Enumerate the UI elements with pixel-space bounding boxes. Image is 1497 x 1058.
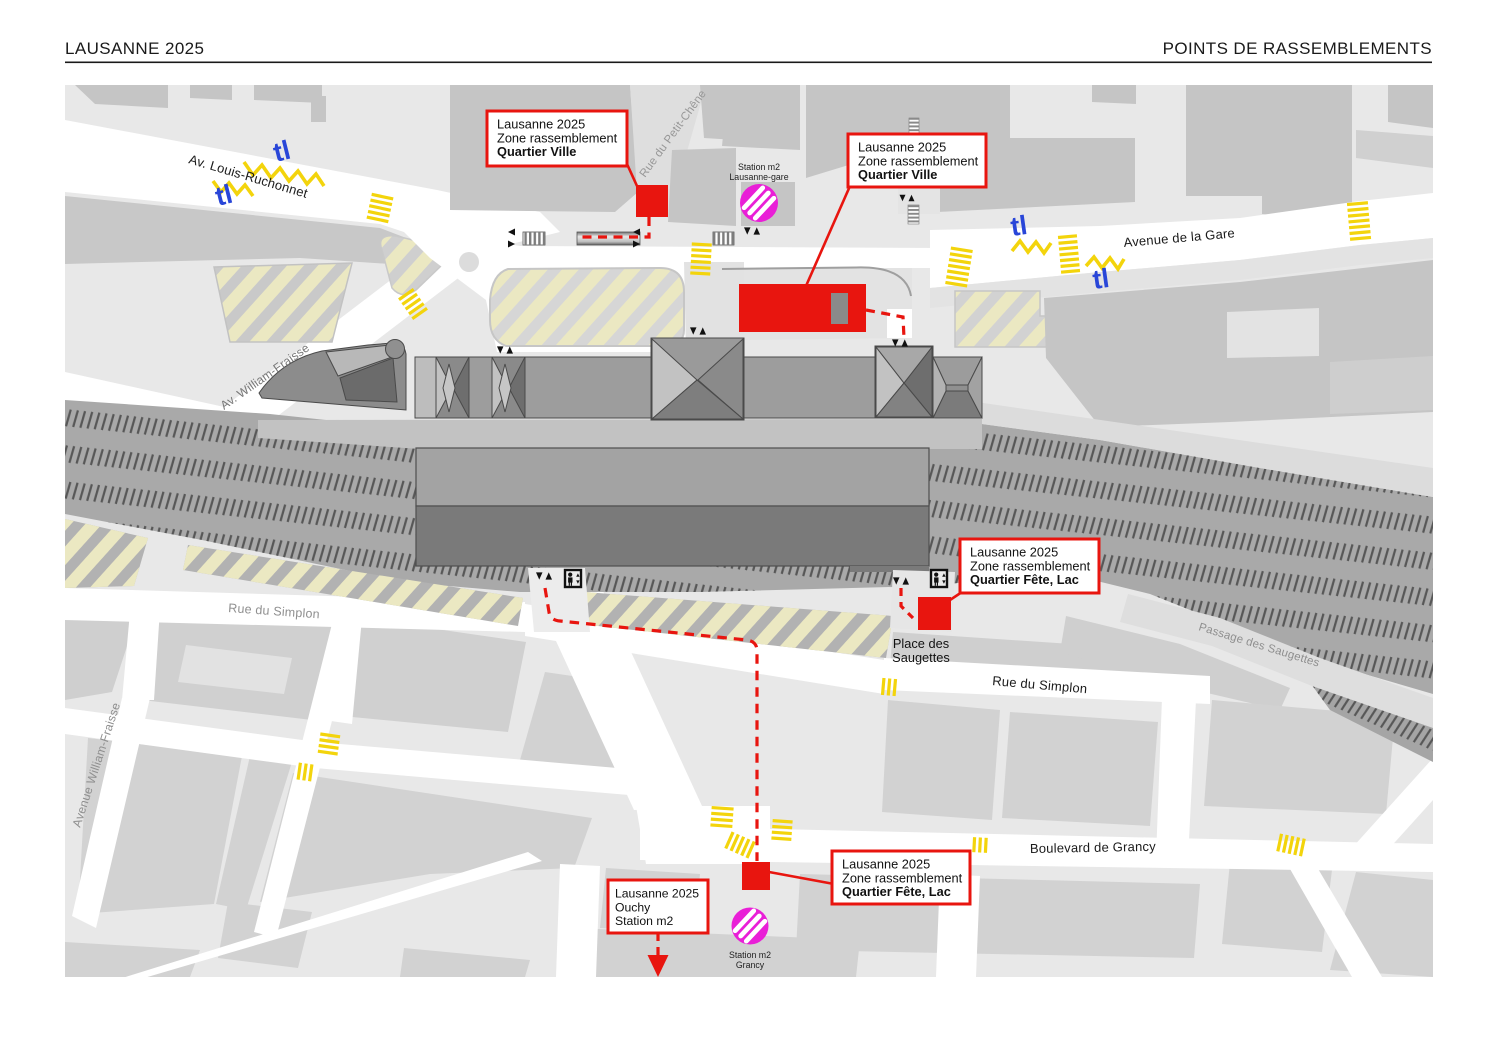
svg-text:Station m2: Station m2: [615, 914, 673, 928]
svg-text:Quartier Fête, Lac: Quartier Fête, Lac: [842, 884, 951, 899]
svg-text:Boulevard de Grancy: Boulevard de Grancy: [1030, 839, 1156, 856]
svg-text:Lausanne 2025: Lausanne 2025: [970, 545, 1058, 560]
svg-text:Lausanne 2025: Lausanne 2025: [497, 117, 585, 132]
svg-text:Zone rassemblement: Zone rassemblement: [497, 130, 618, 145]
svg-text:Lausanne-gare: Lausanne-gare: [729, 172, 788, 182]
svg-text:Quartier Ville: Quartier Ville: [858, 167, 937, 182]
svg-text:Place des: Place des: [893, 636, 949, 651]
svg-text:Lausanne 2025: Lausanne 2025: [615, 887, 699, 901]
svg-text:Ouchy: Ouchy: [615, 900, 651, 914]
svg-text:Lausanne 2025: Lausanne 2025: [858, 140, 946, 155]
svg-text:Zone rassemblement: Zone rassemblement: [970, 558, 1091, 573]
svg-text:Quartier Fête, Lac: Quartier Fête, Lac: [970, 572, 1079, 587]
svg-text:Zone rassemblement: Zone rassemblement: [858, 153, 979, 168]
svg-text:Grancy: Grancy: [736, 960, 765, 970]
svg-text:Saugettes: Saugettes: [892, 650, 950, 665]
svg-text:Quartier Ville: Quartier Ville: [497, 144, 576, 159]
svg-text:Zone rassemblement: Zone rassemblement: [842, 870, 963, 885]
svg-text:LAUSANNE 2025: LAUSANNE 2025: [65, 39, 204, 58]
svg-text:Station m2: Station m2: [729, 950, 771, 960]
svg-text:Lausanne 2025: Lausanne 2025: [842, 857, 930, 872]
svg-text:POINTS DE RASSEMBLEMENTS: POINTS DE RASSEMBLEMENTS: [1163, 39, 1432, 58]
svg-text:Station m2: Station m2: [738, 162, 780, 172]
